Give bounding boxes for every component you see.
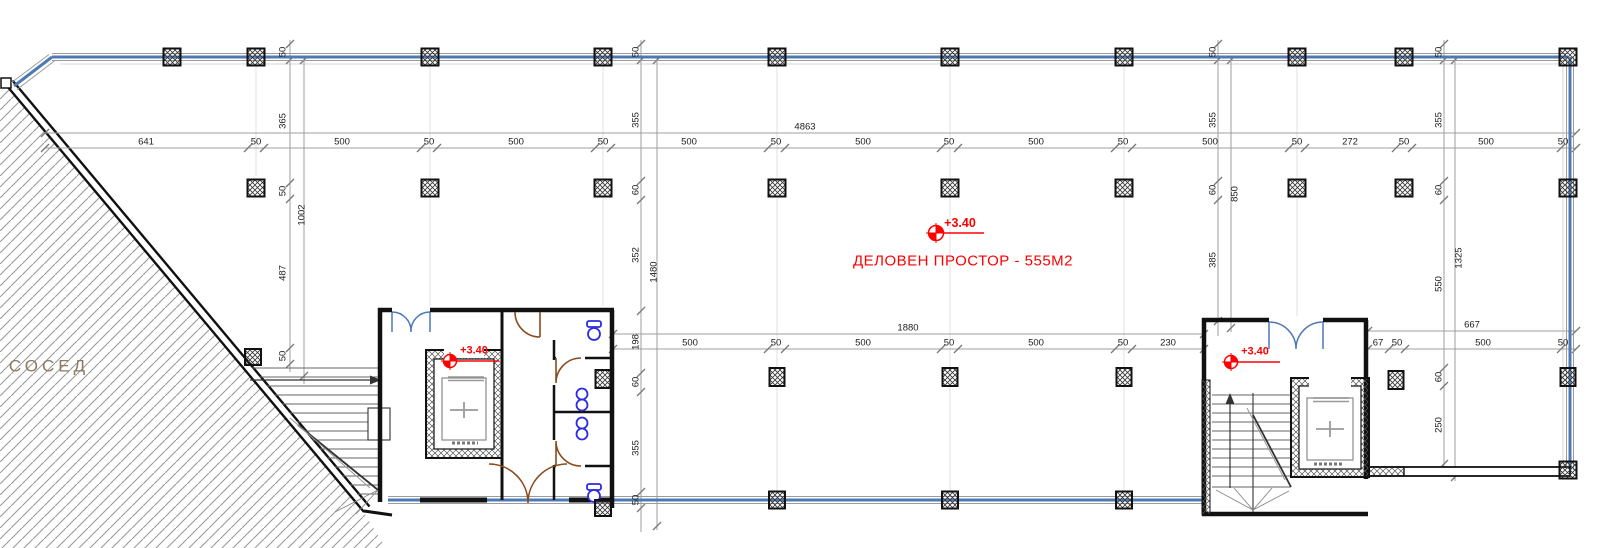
dim-total-left-v: 1002: [297, 204, 307, 225]
dim-label: 50: [944, 137, 955, 147]
right-staircase: [1212, 393, 1291, 512]
dim-label: 500: [1028, 338, 1044, 348]
dim-total-mid-v: 1480: [649, 261, 659, 282]
dim-label: 641: [138, 137, 154, 147]
dim-label: 50: [1399, 137, 1410, 147]
floor-plan-page: СОСЕД ДЕЛОВЕН ПРОСТОР - 555М2 +3.40 +3.4…: [0, 0, 1600, 548]
dim-label: 355: [1434, 112, 1444, 128]
dim-label: 60: [631, 185, 641, 196]
dim-label: 50: [1434, 47, 1444, 58]
dim-label: 50: [631, 47, 641, 58]
dim-total-mid: 1880: [897, 323, 918, 333]
dim-label: 50: [1208, 47, 1218, 58]
dim-label: 198: [631, 334, 641, 350]
right-core: [1202, 318, 1369, 516]
dim-total-right-v-a: 850: [1230, 186, 1240, 202]
dim-total-right: 667: [1464, 320, 1480, 330]
dim-label: 500: [1202, 137, 1218, 147]
dim-label: 50: [278, 351, 288, 362]
dim-label: 355: [631, 440, 641, 456]
dim-label: 50: [1292, 137, 1303, 147]
dim-label: 230: [1160, 338, 1176, 348]
dim-label: 50: [424, 137, 435, 147]
right-elevator: [1291, 376, 1369, 477]
dim-label: 352: [631, 247, 641, 263]
dim-label: 67: [1373, 338, 1384, 348]
dim-label: 50: [771, 137, 782, 147]
dim-label: 487: [278, 265, 288, 281]
dim-label: 250: [1434, 417, 1444, 433]
level-marker-label: +3.40: [1241, 347, 1269, 358]
dim-label: 60: [1434, 372, 1444, 383]
dim-label: 60: [1434, 185, 1444, 196]
dim-label: 50: [251, 137, 262, 147]
dim-label: 50: [1392, 338, 1403, 348]
neighbor-plot-label: СОСЕД: [9, 358, 89, 375]
dim-label: 500: [855, 137, 871, 147]
dim-total-right-v-b: 1325: [1454, 247, 1464, 268]
dim-label: 60: [631, 377, 641, 388]
dim-label: 500: [508, 137, 524, 147]
dim-label: 50: [1558, 137, 1569, 147]
dim-label: 500: [855, 338, 871, 348]
dim-label: 50: [631, 495, 641, 506]
floor-plan-drawing: [0, 0, 1600, 548]
dim-label: 50: [1118, 137, 1129, 147]
dim-label: 272: [1342, 137, 1358, 147]
dim-label: 50: [1118, 338, 1129, 348]
dim-label: 50: [278, 186, 288, 197]
dim-label: 550: [1434, 276, 1444, 292]
dim-label: 50: [1558, 338, 1569, 348]
left-elevator: [426, 347, 502, 458]
dim-label: 355: [1208, 112, 1218, 128]
dim-label: 500: [1028, 137, 1044, 147]
dim-label: 500: [681, 137, 697, 147]
left-entrance-door: [392, 312, 430, 332]
right-entrance-door: [1269, 322, 1323, 349]
dim-label: 50: [278, 47, 288, 58]
dim-label: 355: [631, 112, 641, 128]
dim-label: 500: [682, 338, 698, 348]
dim-label: 500: [1478, 137, 1494, 147]
dim-label: 500: [334, 137, 350, 147]
dim-label: 500: [1475, 338, 1491, 348]
dim-total-top: 4863: [794, 122, 815, 132]
dim-label: 50: [944, 338, 955, 348]
dim-label: 50: [598, 137, 609, 147]
dim-label: 385: [1208, 252, 1218, 268]
room-area-label: ДЕЛОВЕН ПРОСТОР - 555М2: [853, 254, 1073, 269]
dim-label: 365: [278, 113, 288, 129]
level-marker-label: +3.40: [944, 217, 976, 230]
dim-label: 50: [771, 338, 782, 348]
dim-label: 60: [1208, 185, 1218, 196]
level-marker-label: +3.40: [460, 346, 488, 357]
